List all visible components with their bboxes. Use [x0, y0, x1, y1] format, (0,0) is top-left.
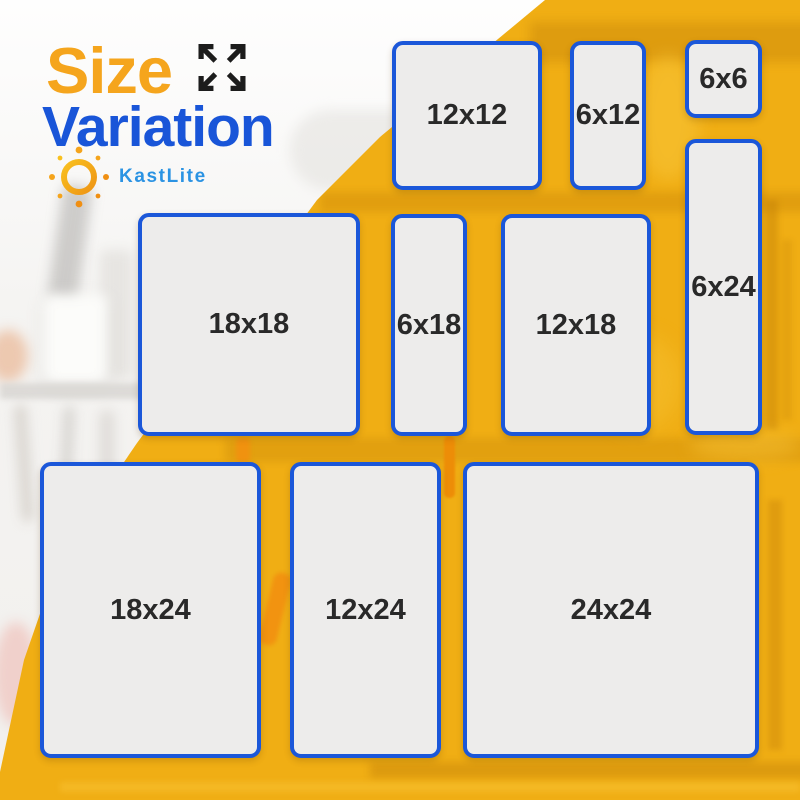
size-label: 18x18 [209, 308, 290, 341]
size-label: 12x12 [427, 99, 508, 132]
bg-tool-shadow [370, 762, 800, 778]
size-box-12x18: 12x18 [501, 214, 651, 436]
size-label: 6x24 [691, 271, 756, 304]
size-box-6x24: 6x24 [685, 139, 762, 435]
bg-orange-tool [444, 436, 455, 498]
bg-pegboard-tool [766, 200, 778, 430]
sun-logo-icon [47, 145, 111, 209]
size-box-24x24: 24x24 [463, 462, 759, 758]
product-infographic: Size Variation KastLite 12x12 6x12 [0, 0, 800, 800]
size-label: 6x12 [576, 99, 641, 132]
size-label: 6x6 [699, 63, 747, 96]
bg-orange-tool [257, 571, 292, 647]
bg-pegboard-tool [768, 500, 782, 750]
bg-highlight [60, 782, 800, 792]
brand-name: KastLite [119, 166, 207, 188]
size-box-6x18: 6x18 [391, 214, 467, 436]
size-box-12x12: 12x12 [392, 41, 542, 190]
size-box-18x18: 18x18 [138, 213, 360, 436]
size-label: 18x24 [110, 594, 191, 627]
size-label: 12x24 [325, 594, 406, 627]
bg-shelf-board [0, 383, 152, 399]
size-label: 6x18 [397, 309, 462, 342]
bg-white-bucket [44, 294, 108, 384]
size-box-12x24: 12x24 [290, 462, 441, 758]
size-label: 24x24 [571, 594, 652, 627]
size-label: 12x18 [536, 309, 617, 342]
page-title-line1: Size [46, 38, 172, 103]
brand-logo: KastLite [47, 145, 307, 209]
bg-pegboard-tool [782, 240, 792, 420]
bg-orange-tool [236, 438, 250, 462]
size-box-6x6: 6x6 [685, 40, 762, 118]
size-box-18x24: 18x24 [40, 462, 261, 758]
expand-arrows-icon [192, 39, 252, 96]
size-box-6x12: 6x12 [570, 41, 646, 190]
